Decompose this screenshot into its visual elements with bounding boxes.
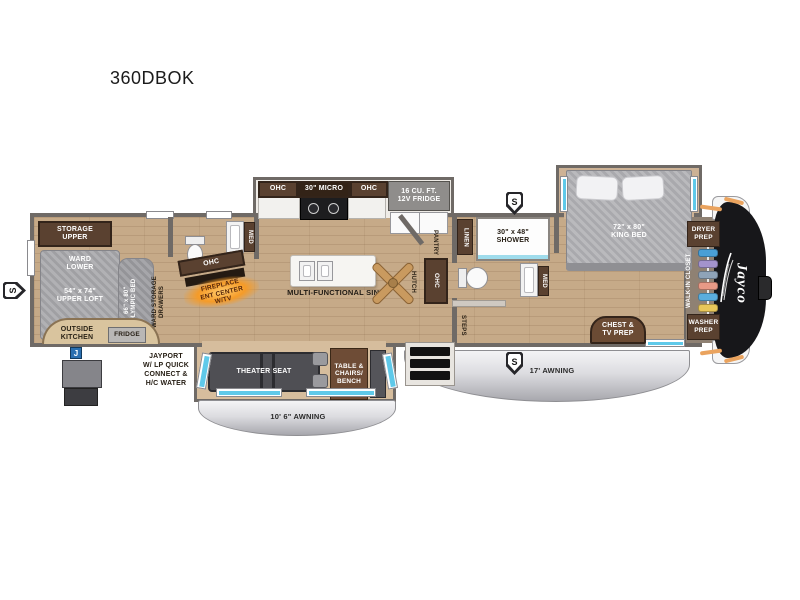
fridge-16-label: 16 CU. FT. 12V FRIDGE bbox=[398, 188, 441, 205]
main-bath-toilet bbox=[458, 264, 490, 292]
main-bath-med-label: MED bbox=[540, 274, 547, 288]
closet-clothes-item bbox=[698, 249, 718, 257]
living-slide-window-bottom-left bbox=[216, 388, 282, 397]
steps-landing bbox=[452, 300, 506, 307]
floorplan-canvas: 360DBOK 10' 6" AWNING 17' AWNING Jayco S… bbox=[0, 0, 800, 600]
bedroom-slide-window-right bbox=[690, 176, 698, 212]
closet-clothes-item bbox=[698, 282, 718, 290]
awning-left-label: 10' 6" AWNING bbox=[248, 413, 348, 422]
dinette-chair-top bbox=[312, 352, 328, 366]
s-badge-roof: S bbox=[506, 192, 523, 215]
jayport-device-bottom bbox=[64, 388, 98, 406]
entry-step bbox=[410, 347, 450, 356]
king-bed-pillow-right bbox=[621, 175, 664, 201]
dryer-prep-cabinet: DRYER PREP bbox=[687, 221, 720, 247]
entry-step bbox=[410, 359, 450, 368]
entry-step bbox=[410, 371, 450, 380]
pantry-label: PANTRY bbox=[431, 226, 438, 260]
main-bath-sink bbox=[520, 263, 538, 297]
shower: 30" x 48" SHOWER bbox=[476, 217, 550, 261]
washer-prep-label: WASHER PREP bbox=[689, 319, 719, 334]
hutch-ohc-cabinet: OHC bbox=[424, 258, 448, 304]
bedroom-slide-window-left bbox=[560, 176, 568, 212]
outside-kitchen-label: OUTSIDE KITCHEN bbox=[46, 326, 108, 343]
hitch-pin bbox=[758, 276, 772, 300]
main-bath-med-cabinet: MED bbox=[538, 266, 549, 296]
shower-label: 30" x 48" SHOWER bbox=[482, 229, 544, 246]
living-slide-opening bbox=[202, 341, 386, 348]
hutch-ohc-label: OHC bbox=[432, 273, 440, 288]
chest-tv-prep: CHEST & TV PREP bbox=[590, 316, 646, 344]
kitchen-island bbox=[290, 255, 376, 287]
ohc-right-label: OHC bbox=[361, 185, 377, 193]
burner-left bbox=[308, 203, 319, 214]
steps-label: STEPS bbox=[459, 308, 466, 342]
theater-seat-label: THEATER SEAT bbox=[216, 368, 312, 376]
dinette-table-label: TABLE & CHAIRS/ BENCH bbox=[334, 363, 363, 386]
window-top-midbath bbox=[206, 211, 232, 219]
island-sink-right bbox=[317, 261, 333, 281]
ohc-left-label: OHC bbox=[270, 185, 286, 193]
microwave-cabinet: 30" MICRO bbox=[298, 181, 350, 198]
ward-lower-label: WARD LOWER bbox=[52, 256, 108, 273]
shower-threshold bbox=[478, 255, 548, 259]
closet-clothes-item bbox=[698, 293, 718, 301]
king-bed-label: 72" x 80" KING BED bbox=[578, 224, 680, 241]
closet-clothes-item bbox=[698, 271, 718, 279]
outside-fridge-label: FRIDGE bbox=[114, 331, 140, 339]
ohc-right-cabinet: OHC bbox=[350, 181, 388, 198]
kitchen-counter-right bbox=[348, 197, 386, 219]
wall-bunk-bath bbox=[168, 217, 173, 257]
fridge-16: 16 CU. FT. 12V FRIDGE bbox=[388, 181, 450, 211]
awning-right-label: 17' AWNING bbox=[522, 367, 582, 376]
storage-upper-label: STORAGE UPPER bbox=[57, 226, 93, 243]
kitchen-counter-left bbox=[258, 197, 300, 219]
dryer-prep-label: DRYER PREP bbox=[692, 226, 716, 241]
theater-seat: THEATER SEAT bbox=[208, 352, 320, 392]
s-badge-left-wall: S bbox=[3, 282, 26, 299]
jayco-logo: Jayco bbox=[732, 238, 750, 328]
window-bedroom-bottom bbox=[645, 339, 685, 347]
burner-right bbox=[328, 203, 339, 214]
living-slide-window-bottom-right bbox=[306, 388, 376, 397]
storage-upper-cabinet: STORAGE UPPER bbox=[38, 221, 112, 247]
linen-cabinet: LINEN bbox=[457, 219, 473, 255]
microwave-label: 30" MICRO bbox=[305, 185, 343, 193]
upper-loft-label: 54" x 74" UPPER LOFT bbox=[44, 288, 116, 305]
window-left-wall bbox=[27, 240, 35, 276]
ohc-left-cabinet: OHC bbox=[258, 181, 298, 198]
walk-in-closet-label: WALK-IN CLOSET bbox=[686, 250, 693, 312]
closet-clothes-item bbox=[698, 260, 718, 268]
king-bed-pillow-left bbox=[575, 175, 618, 201]
hutch-label: HUTCH bbox=[409, 266, 416, 298]
floorplan-title: 360DBOK bbox=[110, 68, 230, 89]
entry-steps bbox=[405, 342, 455, 386]
king-bed-foot bbox=[566, 263, 692, 271]
wall-bedroom-divider bbox=[554, 217, 559, 253]
entertainment-ohc-label: OHC bbox=[203, 258, 220, 269]
dinette-chair-bottom bbox=[312, 374, 328, 388]
washer-prep-cabinet: WASHER PREP bbox=[687, 314, 720, 340]
fridge-door-split bbox=[419, 213, 420, 233]
mid-bath-med-label: MED bbox=[246, 230, 253, 244]
jayport-device-top bbox=[62, 360, 102, 388]
chest-tv-label: CHEST & TV PREP bbox=[602, 322, 634, 339]
stove bbox=[300, 196, 348, 220]
closet-clothes-item bbox=[698, 304, 718, 312]
island-sink-left bbox=[299, 261, 315, 281]
outside-kitchen-fridge: FRIDGE bbox=[108, 327, 146, 343]
jayport-badge-letter: J bbox=[74, 349, 78, 358]
jayport-badge: J bbox=[70, 347, 82, 359]
linen-label: LINEN bbox=[461, 228, 468, 247]
